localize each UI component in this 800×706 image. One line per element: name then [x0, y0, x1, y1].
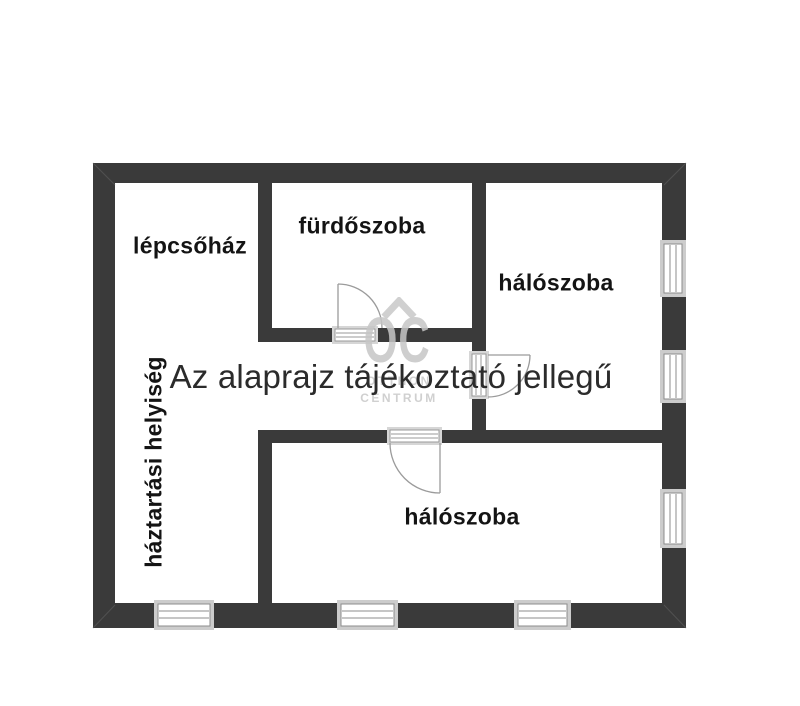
window-pane	[664, 493, 682, 544]
wall-bathroom-right-upper	[472, 183, 486, 353]
threshold-pane	[390, 430, 439, 442]
window-pane	[664, 354, 682, 399]
door-threshold-bathroom	[332, 326, 378, 344]
window-bottom-left	[154, 600, 214, 630]
window-bottom-right	[514, 600, 571, 630]
floor-plan-graphics	[0, 0, 800, 706]
window-pane	[158, 604, 210, 626]
window-bottom-middle	[337, 600, 398, 630]
wall-staircase-right	[258, 183, 272, 342]
wall-outer-left	[93, 163, 115, 628]
window-pane	[341, 604, 394, 626]
door-arc-bedroom-bottom	[390, 443, 440, 493]
wall-bedroom-divider	[258, 430, 686, 443]
floor-plan-canvas: OC OTTHON CENTRUM lépcsőház fürdőszoba h…	[0, 0, 800, 706]
room-label-haloszoba-top: hálószoba	[498, 270, 613, 297]
window-right-middle	[660, 350, 686, 403]
window-pane	[664, 244, 682, 293]
window-right-bottom	[660, 489, 686, 548]
room-label-furdoszoba: fürdőszoba	[299, 213, 426, 240]
door-arc-bathroom	[338, 284, 382, 328]
disclaimer-text: Az alaprajz tájékoztató jellegű	[170, 358, 613, 396]
window-right-top	[660, 240, 686, 297]
wall-utility-right	[258, 430, 272, 628]
threshold-pane	[335, 329, 375, 341]
window-pane	[518, 604, 567, 626]
room-label-haloszoba-bottom: hálószoba	[404, 504, 519, 531]
room-label-lepcsohaz: lépcsőház	[133, 233, 247, 260]
wall-outer-top	[93, 163, 686, 183]
room-label-haztartasi-helyiseg: háztartási helyiség	[141, 356, 168, 568]
door-threshold-bedroom-bottom	[387, 427, 442, 445]
